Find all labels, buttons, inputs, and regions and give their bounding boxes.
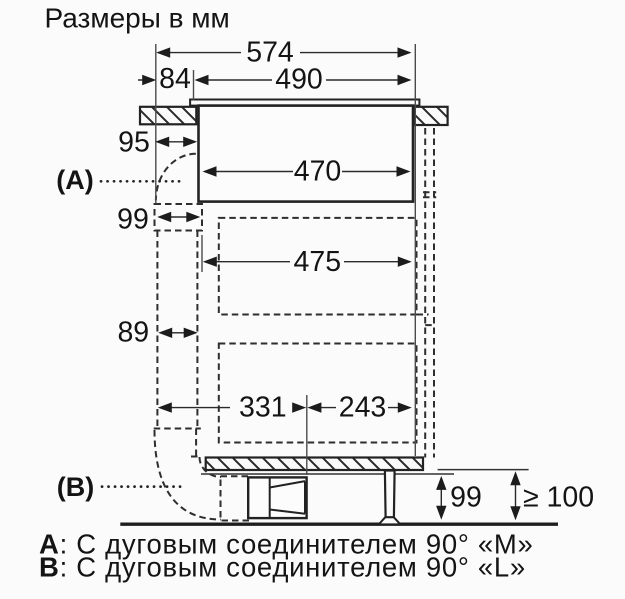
svg-text:243: 243 bbox=[339, 391, 387, 423]
svg-text:89: 89 bbox=[117, 317, 149, 349]
svg-text:331: 331 bbox=[239, 391, 287, 423]
svg-text:(A): (A) bbox=[56, 165, 93, 195]
svg-text:99: 99 bbox=[450, 481, 482, 513]
svg-text:(B): (B) bbox=[57, 472, 94, 502]
svg-text:490: 490 bbox=[275, 63, 323, 95]
svg-text:99: 99 bbox=[117, 203, 149, 235]
svg-text:B: С дуговым соединителем 90°: B: С дуговым соединителем 90° «L» bbox=[39, 552, 526, 583]
svg-text:84: 84 bbox=[159, 63, 191, 95]
svg-text:Размеры в мм: Размеры в мм bbox=[45, 3, 230, 34]
svg-text:470: 470 bbox=[294, 155, 342, 187]
svg-text:≥ 100: ≥ 100 bbox=[523, 481, 594, 513]
svg-text:475: 475 bbox=[294, 246, 342, 278]
svg-text:95: 95 bbox=[118, 127, 150, 159]
